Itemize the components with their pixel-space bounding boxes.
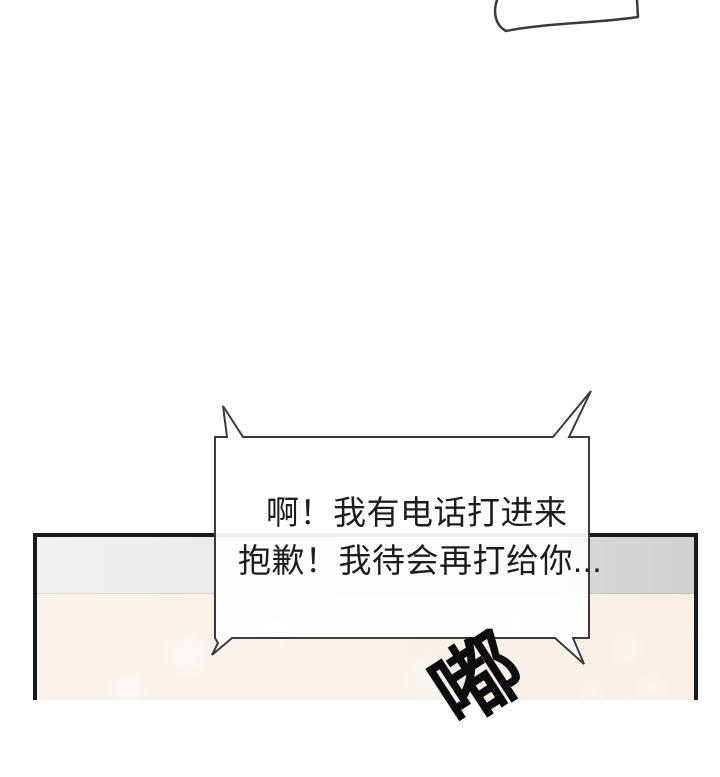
speech-line: 抱歉！我待会再打给你...	[238, 541, 602, 580]
panel-floor-texture	[37, 594, 694, 700]
speech-line: 啊！我有电话打进来	[266, 493, 568, 532]
partial-bubble-outline	[495, 0, 638, 31]
comic-page: { "page": { "type": "webtoon-comic-panel…	[0, 0, 720, 700]
comic-panel-area: 啊！我有电话打进来 抱歉！我待会再打给你... 嘟	[0, 0, 720, 700]
